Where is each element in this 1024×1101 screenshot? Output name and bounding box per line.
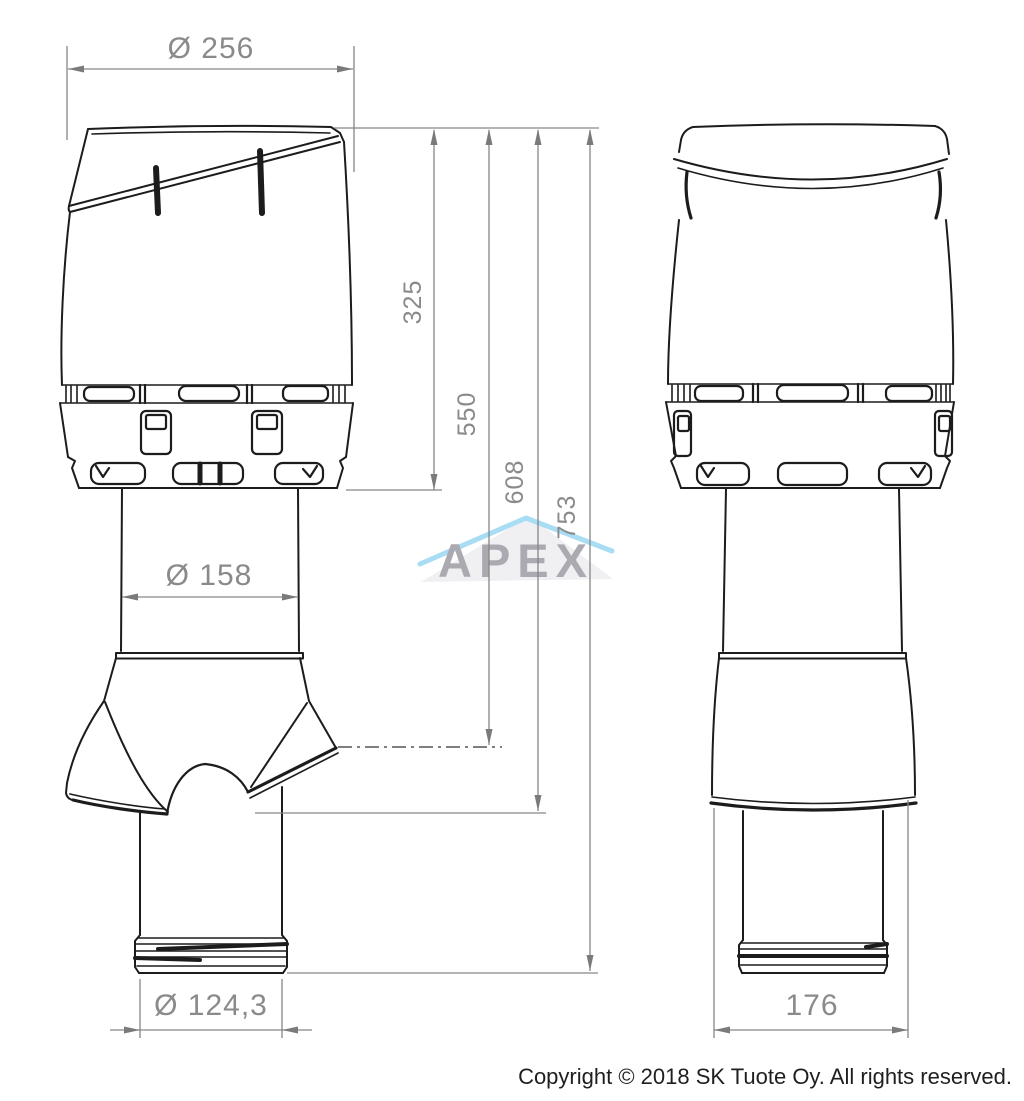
side-cap-bottom-band xyxy=(671,456,950,488)
front-cap-vent-row xyxy=(66,385,345,403)
front-cap-clip-band xyxy=(60,403,353,457)
dimension-height-to-boot-bottom: 608 xyxy=(501,129,542,811)
dimension-height-to-boot-top: 550 xyxy=(453,129,493,745)
front-cap-body xyxy=(60,142,353,403)
watermark: APEX xyxy=(420,516,613,587)
front-cap-lid xyxy=(69,126,344,213)
dimension-label-pipe-diameter: Ø 158 xyxy=(166,559,253,592)
dimension-cap-width: Ø 256 xyxy=(68,32,353,73)
dimension-label-boot-width: 176 xyxy=(785,989,838,1022)
side-cap-body xyxy=(666,220,954,402)
side-view-drawing xyxy=(666,124,954,973)
dimension-cap-height: 325 xyxy=(399,129,438,490)
dimension-label-outlet-diameter: Ø 124,3 xyxy=(154,989,268,1022)
dimension-boot-width: 176 xyxy=(714,989,908,1034)
side-seal-sleeve xyxy=(711,658,916,810)
side-pipe-lower xyxy=(743,811,883,940)
side-outlet-rings xyxy=(739,940,887,973)
dimension-label-cap-width: Ø 256 xyxy=(168,32,255,65)
front-outlet-rings xyxy=(135,935,287,973)
side-cap-lid xyxy=(674,124,949,218)
side-cap-clip-band xyxy=(666,402,954,456)
watermark-text: APEX xyxy=(438,534,594,587)
front-view-drawing xyxy=(60,126,353,973)
dimension-label-height-to-boot-bottom: 608 xyxy=(501,460,529,505)
dimension-label-cap-height: 325 xyxy=(399,280,427,325)
side-cap-vent-row xyxy=(672,384,950,402)
copyright-text: Copyright © 2018 SK Tuote Oy. All rights… xyxy=(518,1064,1012,1089)
front-cap-bottom-band xyxy=(68,457,346,488)
technical-drawing-canvas: APEX xyxy=(0,0,1024,1101)
dimension-pipe-diameter: Ø 158 xyxy=(122,559,298,601)
side-pipe-upper xyxy=(719,489,906,659)
dimension-label-height-to-boot-top: 550 xyxy=(453,392,481,437)
dimension-label-total-height: 753 xyxy=(553,495,581,540)
front-roof-boot xyxy=(66,658,338,814)
